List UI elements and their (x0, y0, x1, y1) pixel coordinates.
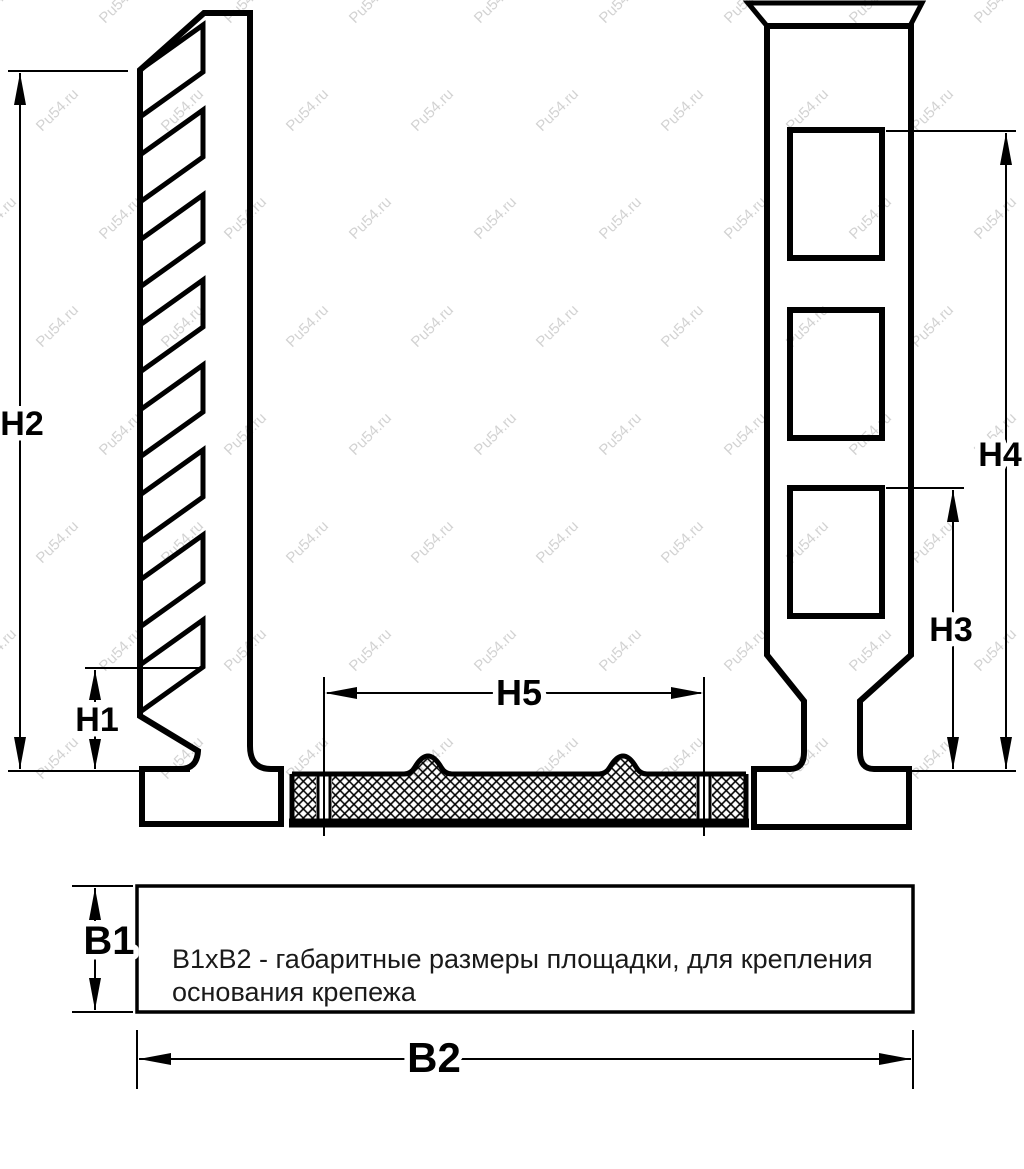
watermark-text: Pu54.ru (221, 194, 270, 243)
watermark-text: Pu54.ru (33, 302, 82, 351)
note-line-2: основания крепежа (172, 977, 417, 1007)
technical-drawing-canvas: Pu54.ruPu54.ruPu54.ruPu54.ruPu54.ruPu54.… (0, 0, 1024, 1169)
watermark-text: Pu54.ru (408, 302, 457, 351)
watermark-text: Pu54.ru (471, 410, 520, 459)
gasket-hatch-right (712, 776, 744, 819)
watermark-text: Pu54.ru (408, 518, 457, 567)
watermark-text: Pu54.ru (721, 194, 770, 243)
arrowhead-right (671, 687, 703, 699)
label-b2: B2 (407, 1034, 461, 1081)
arrowhead-up (89, 888, 101, 920)
watermark-text: Pu54.ru (221, 626, 270, 675)
watermark-text: Pu54.ru (658, 518, 707, 567)
watermark-text: Pu54.ru (533, 86, 582, 135)
ladder-slot (140, 365, 203, 457)
watermark-text: Pu54.ru (96, 0, 145, 27)
arrowhead-left (325, 687, 357, 699)
watermark-text: Pu54.ru (346, 626, 395, 675)
arrowhead-down (1000, 737, 1012, 769)
watermark-text: Pu54.ru (283, 518, 332, 567)
watermark-text: Pu54.ru (846, 194, 895, 243)
arrowhead-down (89, 739, 101, 769)
watermark-text: Pu54.ru (408, 86, 457, 135)
watermark-text: Pu54.ru (33, 86, 82, 135)
watermark-text: Pu54.ru (0, 626, 20, 675)
watermark-text: Pu54.ru (221, 410, 270, 459)
watermark-text: Pu54.ru (471, 0, 520, 27)
watermark-text: Pu54.ru (283, 86, 332, 135)
watermark-text: Pu54.ru (0, 194, 20, 243)
watermarks-layer: Pu54.ruPu54.ruPu54.ruPu54.ruPu54.ruPu54.… (0, 0, 1024, 783)
label-b1: B1 (83, 919, 134, 963)
watermark-text: Pu54.ru (596, 194, 645, 243)
watermark-text: Pu54.ru (533, 518, 582, 567)
watermark-text: Pu54.ru (346, 194, 395, 243)
watermark-text: Pu54.ru (721, 410, 770, 459)
fastener-technical-drawing: Pu54.ruPu54.ruPu54.ruPu54.ruPu54.ruPu54.… (0, 0, 1024, 1169)
dim-b1: B1 (72, 886, 135, 1012)
watermark-text: Pu54.ru (846, 626, 895, 675)
watermark-text: Pu54.ru (471, 194, 520, 243)
arrowhead-up (14, 73, 26, 105)
watermark-text: Pu54.ru (908, 302, 957, 351)
post-cap (748, 3, 922, 26)
gasket-hatch-middle (332, 759, 696, 820)
label-h5: H5 (496, 672, 542, 713)
watermark-text: Pu54.ru (596, 410, 645, 459)
label-h4: H4 (978, 436, 1022, 474)
note-line-1: В1хВ2 - габаритные размеры площадки, для… (172, 944, 873, 974)
watermark-text: Pu54.ru (533, 302, 582, 351)
watermark-text: Pu54.ru (971, 0, 1020, 27)
ladder-slot (140, 620, 203, 712)
watermark-text: Pu54.ru (471, 626, 520, 675)
watermark-text: Pu54.ru (658, 302, 707, 351)
arrowhead-up (89, 670, 101, 700)
label-h3: H3 (929, 611, 972, 649)
watermark-text: Pu54.ru (971, 626, 1020, 675)
dim-h2: H2 (0, 71, 190, 771)
arrowhead-down (14, 737, 26, 769)
arrowhead-left (139, 1053, 171, 1065)
watermark-text: Pu54.ru (908, 86, 957, 135)
watermark-text: Pu54.ru (846, 410, 895, 459)
watermark-text: Pu54.ru (346, 410, 395, 459)
label-h2: H2 (0, 405, 43, 443)
dim-h3: H3 (886, 488, 973, 769)
watermark-text: Pu54.ru (596, 0, 645, 27)
watermark-text: Pu54.ru (908, 518, 957, 567)
watermark-text: Pu54.ru (721, 626, 770, 675)
post-hole (790, 130, 882, 258)
watermark-text: Pu54.ru (783, 734, 832, 783)
arrowhead-up (947, 490, 959, 522)
ladder-slot (140, 195, 203, 287)
arrowhead-up (1000, 133, 1012, 165)
arrowhead-right (879, 1053, 911, 1065)
gasket-hatch-left (294, 776, 316, 819)
watermark-text: Pu54.ru (658, 86, 707, 135)
watermark-text: Pu54.ru (346, 0, 395, 27)
watermark-text: Pu54.ru (596, 626, 645, 675)
watermark-text: Pu54.ru (0, 0, 20, 27)
watermark-text: Pu54.ru (971, 194, 1020, 243)
watermark-text: Pu54.ru (283, 302, 332, 351)
watermark-text: Pu54.ru (33, 518, 82, 567)
dim-b2: B2 (137, 1030, 913, 1089)
watermark-text: Pu54.ru (33, 734, 82, 783)
label-h1: H1 (75, 701, 118, 739)
arrowhead-down (89, 978, 101, 1010)
